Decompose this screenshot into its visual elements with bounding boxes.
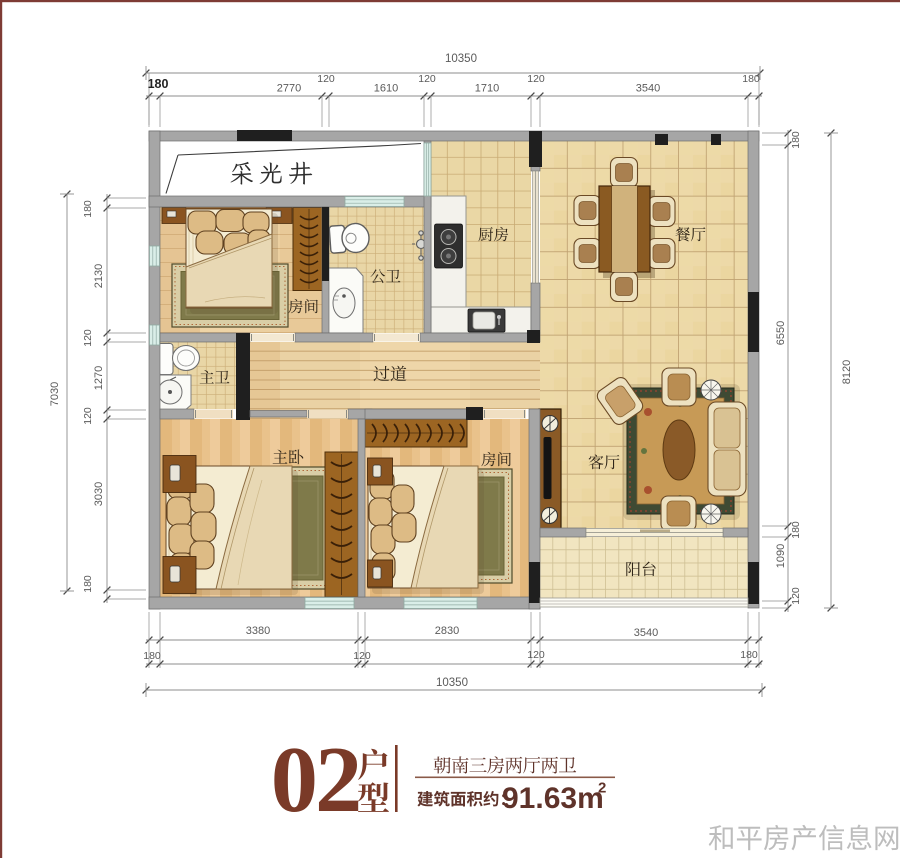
svg-text:180: 180 (148, 77, 169, 91)
svg-text:120: 120 (527, 73, 545, 85)
svg-text:120: 120 (527, 649, 545, 661)
svg-text:7030: 7030 (49, 382, 61, 406)
svg-text:120: 120 (418, 73, 436, 85)
svg-text:3540: 3540 (636, 83, 660, 95)
svg-text:3380: 3380 (246, 625, 270, 637)
svg-text:3030: 3030 (93, 482, 105, 506)
svg-text:120: 120 (317, 73, 335, 85)
svg-text:180: 180 (790, 131, 802, 149)
svg-text:180: 180 (143, 650, 161, 662)
svg-text:2: 2 (598, 780, 606, 797)
svg-text:6550: 6550 (775, 321, 787, 345)
svg-text:1610: 1610 (374, 83, 398, 95)
svg-text:180: 180 (740, 649, 758, 661)
svg-text:2830: 2830 (435, 625, 459, 637)
svg-text:120: 120 (82, 329, 94, 347)
svg-text:1710: 1710 (475, 83, 499, 95)
svg-text:180: 180 (82, 200, 94, 218)
svg-text:3540: 3540 (634, 627, 658, 639)
svg-text:120: 120 (790, 587, 802, 605)
svg-text:2130: 2130 (93, 264, 105, 288)
svg-text:10350: 10350 (436, 677, 468, 689)
svg-text:180: 180 (742, 73, 760, 85)
svg-text:10350: 10350 (445, 53, 477, 65)
svg-text:1270: 1270 (93, 366, 105, 390)
svg-text:120: 120 (82, 407, 94, 425)
svg-text:91.63m: 91.63m (502, 782, 604, 815)
svg-text:180: 180 (790, 521, 802, 539)
svg-text:1090: 1090 (775, 544, 787, 568)
svg-text:180: 180 (82, 575, 94, 593)
svg-text:8120: 8120 (841, 360, 853, 384)
svg-text:02: 02 (271, 728, 360, 832)
svg-text:2770: 2770 (277, 83, 301, 95)
svg-text:120: 120 (353, 650, 371, 662)
